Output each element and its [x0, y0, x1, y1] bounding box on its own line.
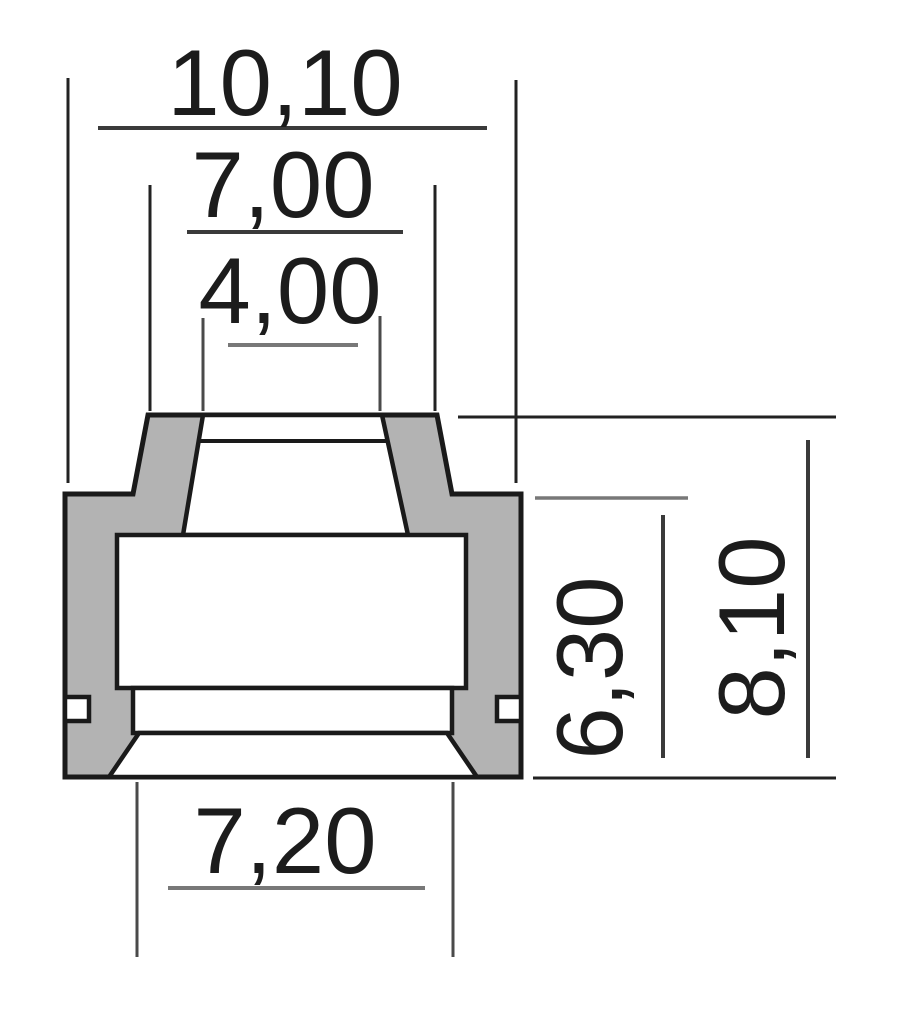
dimension-label: 4,00 [199, 238, 382, 343]
dimension-label: 10,10 [167, 30, 402, 135]
top-bore-funnel [183, 415, 408, 535]
dimension-bore-width-top: 4,00 [199, 238, 382, 411]
dimension-label: 7,00 [192, 132, 375, 237]
dimension-label: 7,20 [194, 788, 377, 893]
outer-groove-notch-right [497, 697, 521, 721]
dimension-label: 6,30 [537, 577, 642, 760]
bottom-bore-chamfer [109, 733, 477, 777]
technical-drawing: 10,10 7,00 4,00 7,20 6,30 8,10 [0, 0, 902, 1024]
dimension-body-height: 6,30 [535, 498, 688, 759]
outer-groove-notch-left [65, 697, 89, 721]
spring-cavity [117, 535, 466, 688]
bottom-recess [133, 688, 452, 733]
dimension-label: 8,10 [699, 537, 804, 720]
dimension-bore-width-bottom: 7,20 [137, 782, 453, 957]
